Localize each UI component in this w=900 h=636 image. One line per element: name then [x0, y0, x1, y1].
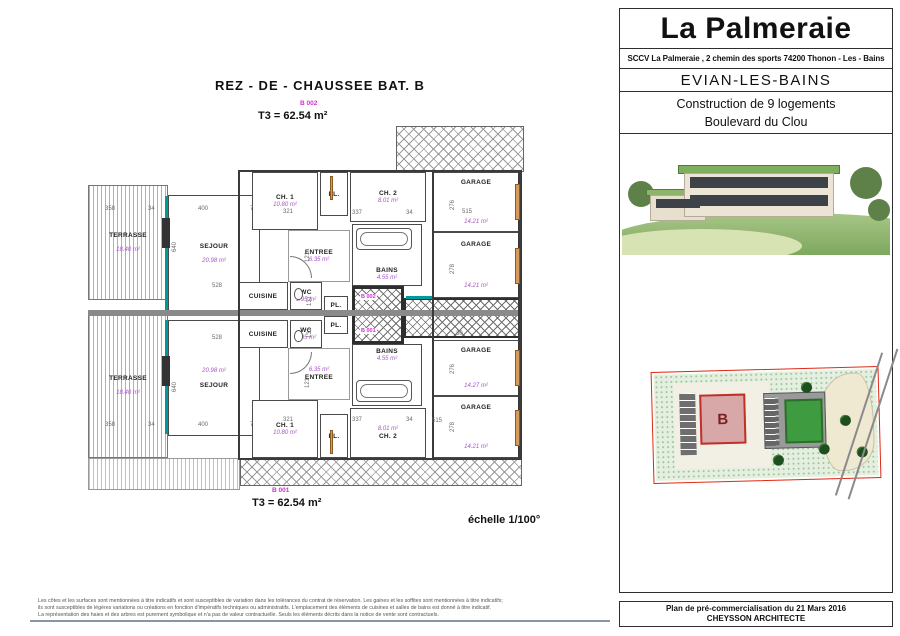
city-name: EVIAN-LES-BAINS	[620, 69, 892, 92]
project-name: La Palmeraie	[620, 9, 892, 49]
dimension-label: 515	[462, 209, 472, 215]
garage-door-2	[515, 248, 520, 284]
central-wall	[88, 310, 520, 316]
dimension-label: 276	[450, 364, 456, 374]
room-label: GARAGE	[461, 241, 491, 248]
window-corridor	[406, 296, 432, 299]
floor-plan-pane: REZ - DE - CHAUSSEE BAT. B B 002 T3 = 62…	[0, 0, 618, 636]
bathtub-top	[356, 228, 412, 250]
dimension-label: 400	[198, 206, 208, 212]
scale-label: échelle 1/100°	[468, 514, 540, 526]
architect-name: CHEYSSON ARCHITECTE	[707, 614, 805, 624]
room-garage-3: GARAGE 14.27 m²	[432, 340, 520, 396]
dimension-label: 640	[172, 242, 178, 252]
room-label: GARAGE	[461, 179, 491, 186]
dimension-label: 321	[283, 417, 293, 423]
building-render-image	[622, 137, 890, 255]
disclaimer-line-2: ils sont susceptibles de légères variati…	[38, 605, 530, 612]
dimension-label: 321	[283, 209, 293, 215]
dimension-label: 34	[406, 210, 413, 216]
dimension-label: 7	[250, 422, 253, 428]
room-pl-bottom: PL.	[320, 414, 348, 458]
plan-title: REZ - DE - CHAUSSEE BAT. B	[215, 78, 425, 93]
room-area: 14.27 m²	[464, 383, 488, 389]
room-area: 4.55 m²	[377, 356, 397, 362]
plan-footer-box: Plan de pré-commercialisation du 21 Mars…	[619, 601, 893, 627]
toilet-bottom	[294, 330, 303, 342]
room-label: PL.	[330, 322, 341, 329]
dimension-label: 34	[406, 417, 413, 423]
site-building-2-garages	[764, 398, 779, 446]
room-label: GARAGE	[461, 347, 491, 354]
apartment-id-bottom: B 001	[272, 487, 289, 494]
disclaimer-line-3: La représentation des haies et des arbre…	[38, 612, 530, 619]
dimension-label: 276	[450, 200, 456, 210]
room-area: 6.35 m²	[309, 367, 329, 373]
room-label: CUISINE	[249, 331, 277, 338]
drawing-sheet: REZ - DE - CHAUSSEE BAT. B B 002 T3 = 62…	[0, 0, 900, 636]
room-garage-2: GARAGE 14.21 m²	[432, 232, 520, 298]
room-area: 8.01 m²	[378, 426, 398, 432]
room-garage-1: GARAGE 14.21 m²	[432, 172, 520, 232]
plan-date-line: Plan de pré-commercialisation du 21 Mars…	[666, 604, 846, 614]
render-window-band	[690, 177, 828, 188]
dimension-label: 337	[352, 417, 362, 423]
room-terrasse-top: TERRASSE 18.40 m²	[88, 185, 168, 300]
render-tree	[868, 199, 890, 221]
window-wall-top	[165, 196, 168, 310]
room-ch2-bottom: 8.01 m² CH. 2	[350, 408, 426, 458]
site-plan: B	[651, 366, 882, 484]
driveway-hatch-top	[396, 126, 524, 172]
room-pl-top: PL.	[320, 172, 348, 216]
title-block-pane: La Palmeraie SCCV La Palmeraie , 2 chemi…	[619, 8, 893, 593]
dimension-label: 34	[148, 206, 155, 212]
room-pl2-bottom: PL.	[324, 316, 348, 334]
room-area: 6.35 m²	[309, 257, 329, 263]
dimension-label: 400	[198, 422, 208, 428]
room-area: 14.21 m²	[464, 444, 488, 450]
hall-door-label-b002: B 002	[360, 294, 377, 300]
dimension-label: 337	[352, 210, 362, 216]
toilet-top	[294, 288, 303, 300]
site-building-2	[763, 391, 826, 449]
project-description: Construction de 9 logements Boulevard du…	[620, 92, 892, 134]
room-terrasse-bottom: TERRASSE 18.40 m²	[88, 312, 168, 458]
dimension-label: 121	[305, 378, 311, 388]
room-area: 14.21 m²	[464, 283, 488, 289]
room-area: 18.40 m²	[116, 390, 140, 396]
door-jamb-top	[330, 176, 333, 200]
hall-door-label-b001: B 001	[360, 328, 377, 334]
site-roof-garden	[784, 399, 823, 444]
dimension-label: 515	[432, 418, 442, 424]
dimension-label: 121	[305, 252, 311, 262]
room-cuisine-top: CUISINE	[238, 282, 288, 310]
room-area: 10.80 m²	[273, 202, 297, 208]
apartment-area-bottom: T3 = 62.54 m²	[252, 497, 321, 509]
site-garage-strip	[679, 393, 697, 455]
room-label: BAINS	[376, 267, 398, 274]
room-garage-4: GARAGE 14.21 m²	[432, 396, 520, 458]
dimension-label: 528	[212, 335, 222, 341]
apartment-area-top: T3 = 62.54 m²	[258, 110, 327, 122]
door-jamb-bottom	[330, 430, 333, 454]
room-label: CH. 1	[276, 194, 294, 201]
room-label: CH. 2	[379, 190, 397, 197]
garage-door-1	[515, 184, 520, 220]
room-cuisine-bottom: CUISINE	[238, 320, 288, 348]
room-label: PL.	[330, 302, 341, 309]
dimension-label: 131	[307, 328, 313, 338]
disclaimer-text: Les côtes et les surfaces sont mentionné…	[38, 598, 530, 619]
dimension-label: 278	[450, 264, 456, 274]
dimension-label: 358	[105, 206, 115, 212]
site-building-b-label: B	[717, 410, 728, 427]
room-ch1-top: CH. 1 10.80 m²	[252, 172, 318, 230]
garage-door-3	[515, 350, 520, 386]
room-label: TERRASSE	[109, 375, 147, 382]
bottom-divider	[30, 620, 610, 622]
room-label: GARAGE	[461, 404, 491, 411]
room-label: CUISINE	[249, 293, 277, 300]
room-area: 20.98 m²	[202, 258, 226, 264]
room-label: CH. 2	[379, 433, 397, 440]
room-area: 4.55 m²	[377, 275, 397, 281]
dimension-label: 358	[105, 422, 115, 428]
dimension-label: 528	[212, 283, 222, 289]
site-building-b: B	[699, 394, 746, 445]
dimension-label: 30	[456, 331, 463, 337]
bathtub-bottom	[356, 380, 412, 402]
room-label: BAINS	[376, 348, 398, 355]
driveway-hatch-bottom	[240, 458, 522, 486]
room-area: 8.01 m²	[378, 198, 398, 204]
room-area: 18.40 m²	[116, 247, 140, 253]
room-label: SEJOUR	[200, 382, 229, 389]
terrace-extension-hatch	[88, 458, 240, 490]
room-area: 10.80 m²	[273, 430, 297, 436]
dimension-label: 278	[450, 422, 456, 432]
shutter-box-bottom	[162, 356, 170, 386]
dimension-label: 7	[250, 206, 253, 212]
room-area: 20.98 m²	[202, 368, 226, 374]
render-window-band	[656, 199, 700, 208]
room-area: 14.21 m²	[464, 219, 488, 225]
project-desc-line: Construction de 9 logements	[676, 97, 835, 111]
dimension-label: 34	[148, 422, 155, 428]
room-ch1-bottom: CH. 1 10.80 m²	[252, 400, 318, 458]
render-window-band	[690, 195, 828, 206]
garage-door-4	[515, 410, 520, 446]
shutter-box-top	[162, 218, 170, 248]
dimension-label: 131	[307, 296, 313, 306]
room-label: SEJOUR	[200, 243, 229, 250]
dimension-label: 640	[172, 382, 178, 392]
room-label: CH. 1	[276, 422, 294, 429]
render-tree	[850, 167, 882, 199]
project-street-line: Boulevard du Clou	[705, 115, 808, 129]
apartment-id-top: B 002	[300, 100, 317, 107]
room-label: TERRASSE	[109, 232, 147, 239]
disclaimer-line-1: Les côtes et les surfaces sont mentionné…	[38, 598, 530, 605]
company-address: SCCV La Palmeraie , 2 chemin des sports …	[620, 49, 892, 69]
